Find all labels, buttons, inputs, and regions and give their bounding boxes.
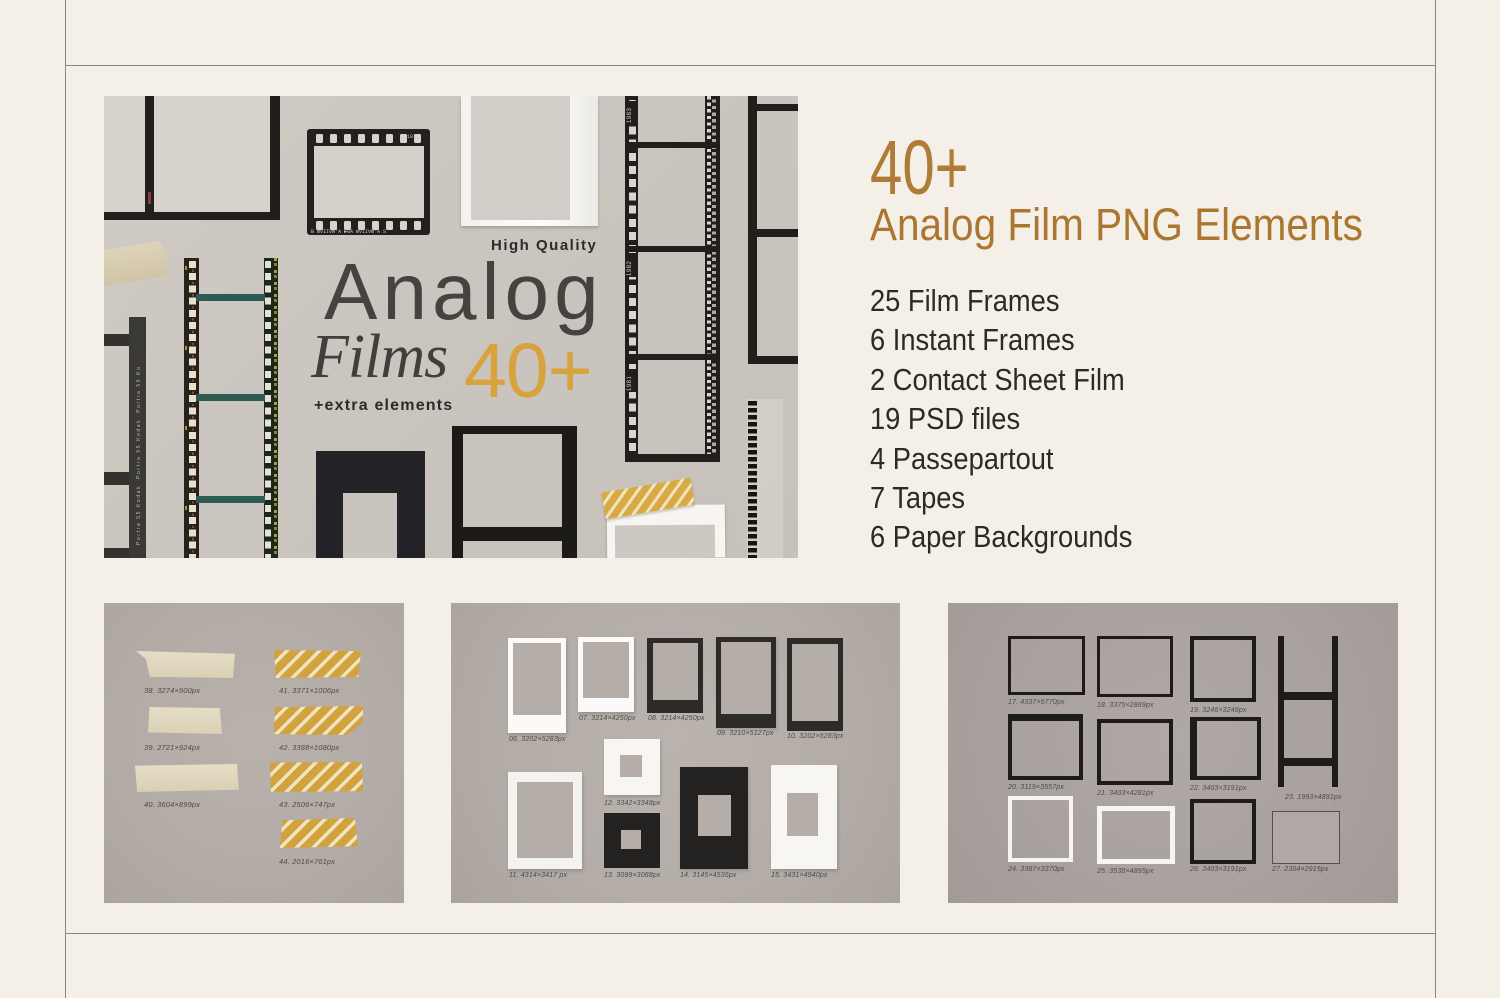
svg-text:B mVIIVm'A ►8A mVIIVm'A S: B mVIIVm'A ►8A mVIIVm'A S <box>311 229 386 235</box>
svg-text:5187: 5187 <box>404 134 416 140</box>
